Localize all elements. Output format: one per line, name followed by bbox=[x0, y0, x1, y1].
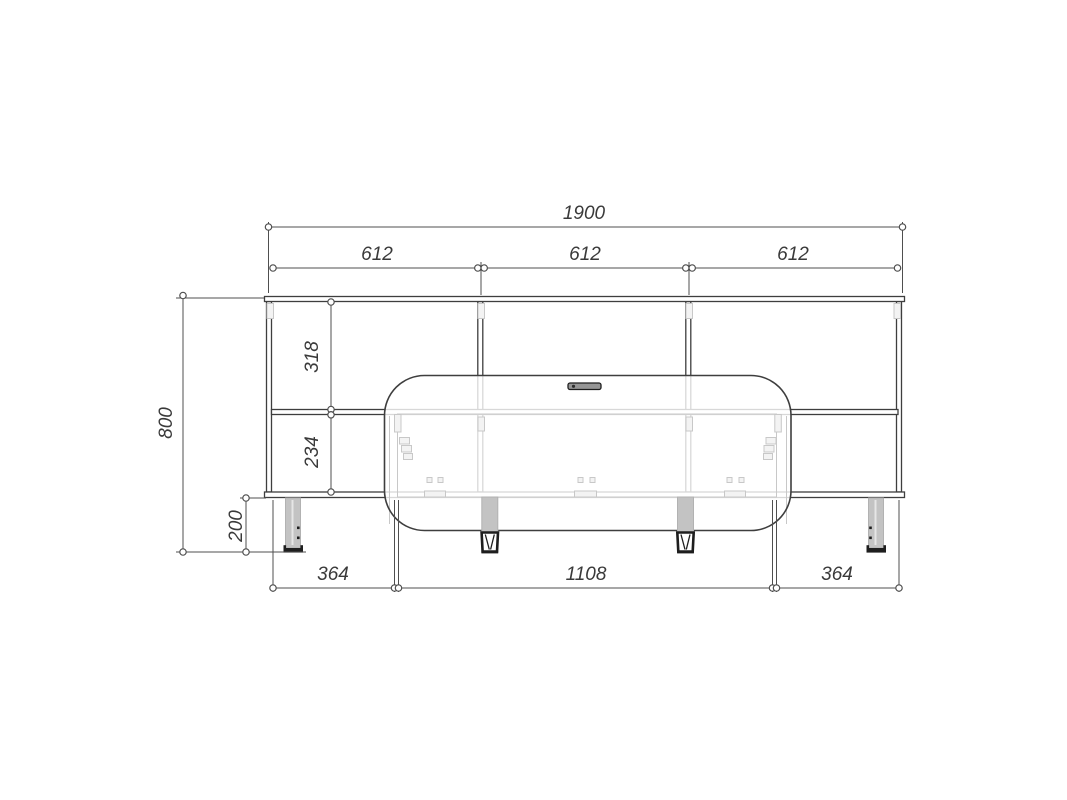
connector-fitting-hidden bbox=[478, 417, 485, 431]
connector-fitting bbox=[894, 304, 901, 319]
leg-left bbox=[284, 498, 304, 553]
leg-right-foot-tip bbox=[883, 545, 886, 548]
bed-leg-1-body bbox=[482, 497, 498, 533]
dim-bottom-center: 1108 bbox=[566, 564, 607, 585]
bed-leg-2 bbox=[677, 497, 694, 553]
drawing-sheet: 1900 612 612 612 800 318 234 200 364 110… bbox=[0, 0, 1067, 800]
bed-cabinet bbox=[385, 376, 792, 531]
side-panel-left bbox=[267, 302, 272, 493]
dim-bay-3: 612 bbox=[777, 244, 809, 265]
connector-fitting bbox=[686, 304, 693, 319]
leg-right-foot-tip bbox=[867, 545, 870, 548]
dim-overall-height: 800 bbox=[156, 407, 177, 439]
bed-leg-2-base bbox=[677, 551, 694, 554]
leg-left-foot-tip bbox=[284, 545, 287, 548]
leg-left-pin bbox=[297, 537, 300, 540]
connector-fitting bbox=[478, 304, 485, 319]
bed-leg-1 bbox=[481, 497, 498, 553]
leg-left-pin bbox=[297, 527, 300, 530]
leg-right-pin bbox=[869, 537, 872, 540]
technical-drawing-canvas: 1900 612 612 612 800 318 234 200 364 110… bbox=[0, 0, 1067, 800]
leg-left-foot-tip bbox=[300, 545, 303, 548]
dim-bay-1: 612 bbox=[361, 244, 393, 265]
handle-screw bbox=[572, 385, 575, 388]
dim-bottom-left: 364 bbox=[317, 564, 349, 585]
side-panel-right bbox=[897, 302, 902, 493]
dim-overall-width: 1900 bbox=[563, 203, 606, 224]
shelf-top bbox=[265, 297, 905, 302]
connector-fitting bbox=[267, 304, 274, 319]
bed-leg-2-foot bbox=[677, 533, 693, 552]
cabinet-body-fill bbox=[385, 376, 792, 531]
leg-right bbox=[867, 498, 887, 553]
bed-leg-1-base bbox=[481, 551, 498, 554]
dim-lower-section: 234 bbox=[302, 436, 323, 469]
bed-leg-1-foot bbox=[482, 533, 498, 552]
cabinet-handle bbox=[568, 383, 601, 390]
frame-fitting-right bbox=[775, 415, 782, 433]
bed-leg-2-body bbox=[678, 497, 694, 533]
frame-fitting-left bbox=[395, 415, 402, 433]
leg-right-pin bbox=[869, 527, 872, 530]
dim-leg-height: 200 bbox=[226, 510, 247, 543]
dim-bottom-right: 364 bbox=[821, 564, 853, 585]
leg-right-foot bbox=[867, 548, 887, 553]
connector-fitting-hidden bbox=[686, 417, 693, 431]
dim-bay-2: 612 bbox=[569, 244, 601, 265]
dim-upper-section: 318 bbox=[302, 341, 323, 373]
